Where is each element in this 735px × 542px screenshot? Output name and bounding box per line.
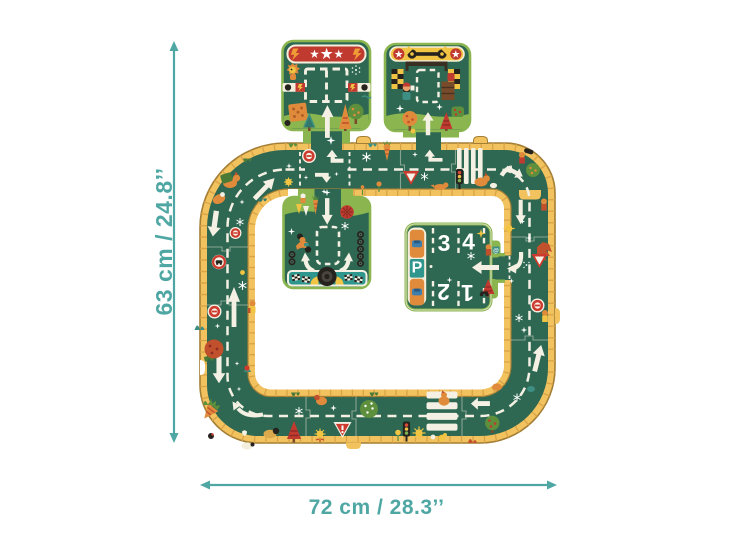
svg-text:1: 1 xyxy=(461,280,474,306)
svg-text:4: 4 xyxy=(462,229,475,255)
svg-text:3: 3 xyxy=(438,230,451,256)
svg-text:@: @ xyxy=(493,249,499,255)
svg-text:2: 2 xyxy=(437,279,450,305)
svg-text:72 cm / 28.3’’: 72 cm / 28.3’’ xyxy=(309,496,445,519)
svg-text:P: P xyxy=(412,260,423,277)
svg-text:63 cm / 24.8’’: 63 cm / 24.8’’ xyxy=(151,167,177,315)
